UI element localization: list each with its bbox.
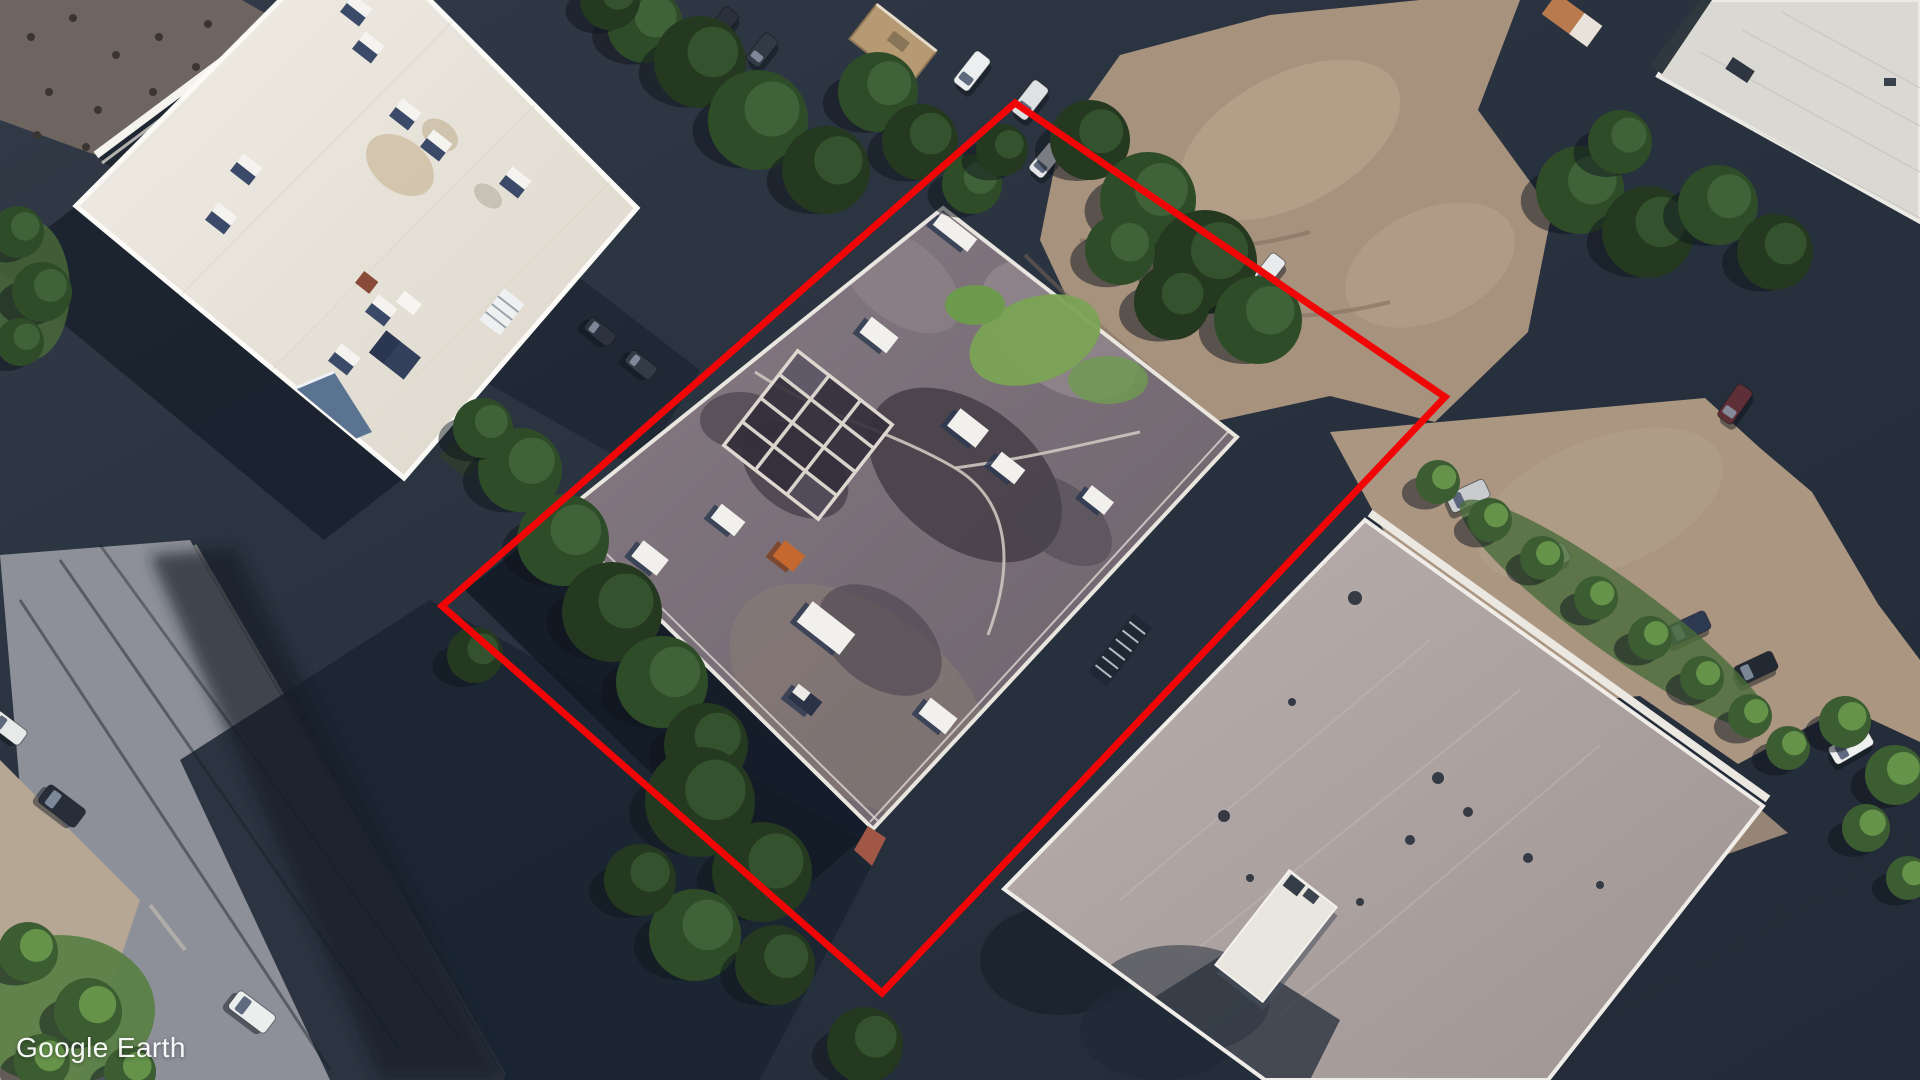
roof-vent-dot bbox=[82, 143, 90, 151]
roof-vent-dot bbox=[94, 106, 102, 114]
roof-vent-dot bbox=[149, 88, 157, 96]
roof-vent-dot bbox=[1348, 591, 1362, 605]
roof-vent-dot bbox=[204, 20, 212, 28]
satellite-image bbox=[0, 0, 1920, 1080]
roof-vent-dot bbox=[192, 63, 200, 71]
roof-vent-dot bbox=[33, 131, 41, 139]
roof-vent bbox=[1884, 78, 1896, 86]
roof-vent-dot bbox=[1246, 874, 1254, 882]
google-earth-viewport: Google Earth bbox=[0, 0, 1920, 1080]
roof-vent-dot bbox=[27, 33, 35, 41]
roof-vent-dot bbox=[112, 51, 120, 59]
roof-vent-dot bbox=[1523, 853, 1533, 863]
roof-vent-dot bbox=[69, 14, 77, 22]
roof-vent-dot bbox=[1218, 810, 1230, 822]
grass-patch bbox=[1068, 356, 1148, 404]
google-earth-watermark: Google Earth bbox=[16, 1032, 186, 1064]
grass-patch bbox=[945, 285, 1005, 325]
roof-vent-dot bbox=[45, 88, 53, 96]
roof-vent-dot bbox=[155, 33, 163, 41]
roof-vent-dot bbox=[1596, 881, 1604, 889]
roof-vent-dot bbox=[1405, 835, 1415, 845]
roof-vent-dot bbox=[1463, 807, 1473, 817]
roof-vent-dot bbox=[1432, 772, 1444, 784]
roof-vent-dot bbox=[1356, 898, 1364, 906]
roof-vent-dot bbox=[1288, 698, 1296, 706]
